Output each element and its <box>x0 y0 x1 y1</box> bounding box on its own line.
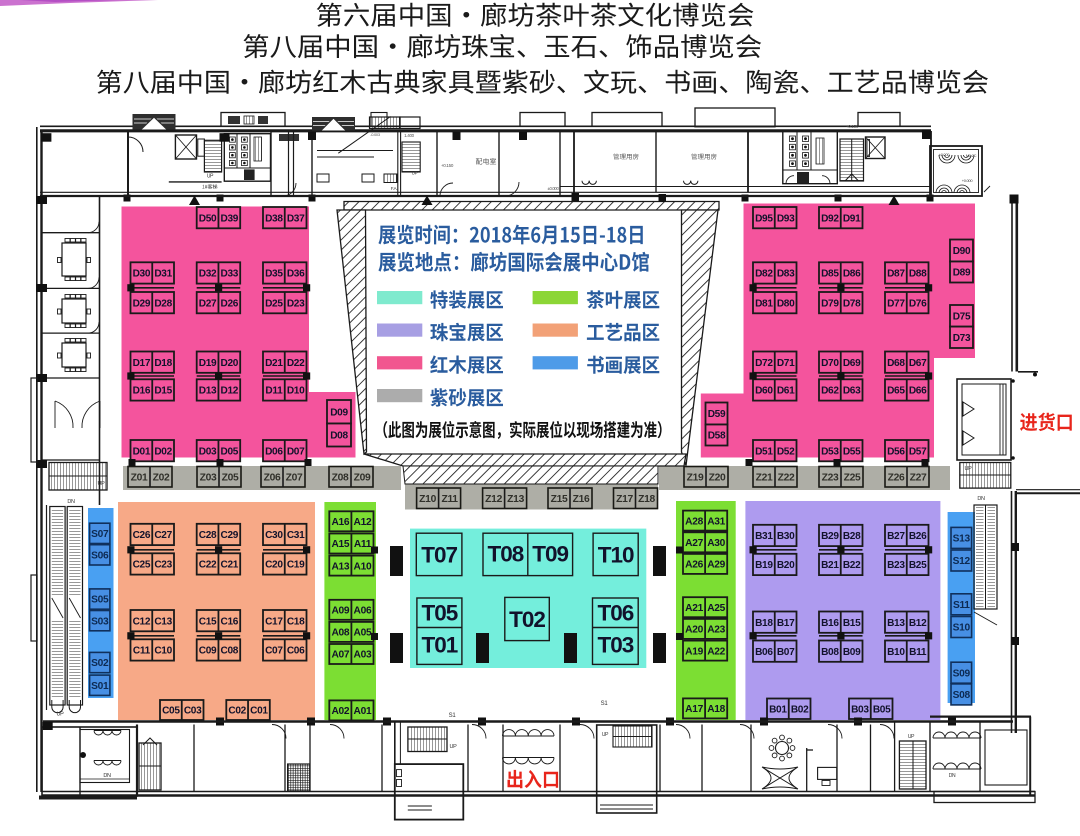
svg-text:S1: S1 <box>449 713 457 719</box>
svg-text:A22: A22 <box>707 646 725 657</box>
svg-text:D69: D69 <box>843 358 861 369</box>
svg-text:B01: B01 <box>769 704 787 715</box>
svg-text:T05: T05 <box>422 601 458 626</box>
svg-text:S06: S06 <box>91 551 109 562</box>
svg-text:D65: D65 <box>887 386 905 397</box>
svg-text:Z12: Z12 <box>485 494 502 505</box>
svg-text:Z18: Z18 <box>638 494 655 505</box>
svg-text:A25: A25 <box>707 603 725 614</box>
svg-text:D72: D72 <box>755 358 773 369</box>
svg-text:T02: T02 <box>509 607 545 632</box>
svg-text:C22: C22 <box>199 560 217 571</box>
svg-text:D57: D57 <box>909 446 927 457</box>
svg-text:D27: D27 <box>199 298 217 309</box>
svg-text:B22: B22 <box>843 560 861 571</box>
svg-text:DN: DN <box>67 499 75 505</box>
svg-text:B19: B19 <box>755 560 773 571</box>
svg-text:Z23: Z23 <box>822 472 839 483</box>
svg-text:+0.150: +0.150 <box>846 124 859 129</box>
svg-text:C06: C06 <box>287 646 305 657</box>
svg-text:B12: B12 <box>909 618 927 629</box>
svg-text:S03: S03 <box>91 616 109 627</box>
svg-text:S07: S07 <box>91 529 109 540</box>
svg-text:Z16: Z16 <box>573 494 590 505</box>
svg-text:Z03: Z03 <box>200 472 217 483</box>
svg-text:D07: D07 <box>287 446 305 457</box>
svg-text:A30: A30 <box>707 538 725 549</box>
svg-text:C13: C13 <box>154 616 172 627</box>
svg-text:T10: T10 <box>598 543 634 568</box>
svg-text:A17: A17 <box>685 704 703 715</box>
svg-text:D23: D23 <box>287 298 305 309</box>
svg-text:D78: D78 <box>843 298 861 309</box>
svg-text:UP: UP <box>97 481 105 487</box>
svg-text:Z13: Z13 <box>507 494 524 505</box>
svg-text:C30: C30 <box>265 530 283 541</box>
svg-text:D10: D10 <box>287 386 305 397</box>
svg-text:D21: D21 <box>265 358 283 369</box>
svg-text:D90: D90 <box>953 246 971 257</box>
svg-text:D92: D92 <box>821 213 839 224</box>
svg-text:D60: D60 <box>755 386 773 397</box>
svg-text:B23: B23 <box>887 560 905 571</box>
svg-text:D86: D86 <box>843 269 861 280</box>
svg-text:D58: D58 <box>708 431 726 442</box>
svg-text:C28: C28 <box>199 530 217 541</box>
svg-text:D53: D53 <box>821 446 839 457</box>
svg-text:C05: C05 <box>162 706 180 717</box>
svg-text:B10: B10 <box>887 647 905 658</box>
svg-text:A15: A15 <box>331 539 349 550</box>
svg-text:D01: D01 <box>133 446 151 457</box>
svg-text:A05: A05 <box>354 628 372 639</box>
svg-text:A03: A03 <box>354 650 372 661</box>
svg-text:C19: C19 <box>287 560 305 571</box>
svg-text:C27: C27 <box>154 530 172 541</box>
svg-text:B30: B30 <box>777 531 795 542</box>
svg-text:Z10: Z10 <box>419 494 436 505</box>
svg-text:D06: D06 <box>265 446 283 457</box>
svg-text:S12: S12 <box>953 556 971 567</box>
svg-text:B31: B31 <box>755 531 773 542</box>
svg-text:B29: B29 <box>821 531 839 542</box>
svg-text:D52: D52 <box>777 446 795 457</box>
svg-text:UP: UP <box>449 744 457 750</box>
svg-text:A28: A28 <box>685 516 703 527</box>
svg-text:Z21: Z21 <box>756 472 773 483</box>
svg-text:D79: D79 <box>821 298 839 309</box>
svg-text:D80: D80 <box>777 298 795 309</box>
svg-text:B13: B13 <box>887 618 905 629</box>
svg-text:C25: C25 <box>133 560 151 571</box>
svg-text:Z05: Z05 <box>222 472 239 483</box>
svg-text:D05: D05 <box>221 446 239 457</box>
svg-text:A27: A27 <box>685 538 703 549</box>
svg-text:D73: D73 <box>953 333 971 344</box>
svg-text:B16: B16 <box>821 618 839 629</box>
svg-text:Z27: Z27 <box>910 472 927 483</box>
svg-text:D13: D13 <box>199 386 217 397</box>
svg-text:C15: C15 <box>199 616 217 627</box>
svg-text:D67: D67 <box>909 358 927 369</box>
svg-text:UP: UP <box>207 174 214 180</box>
svg-text:C26: C26 <box>133 530 151 541</box>
svg-text:S13: S13 <box>953 534 971 545</box>
svg-text:A11: A11 <box>354 539 372 550</box>
svg-text:Z17: Z17 <box>616 494 633 505</box>
svg-text:D88: D88 <box>909 269 927 280</box>
svg-text:C29: C29 <box>221 530 239 541</box>
svg-text:C01: C01 <box>250 706 268 717</box>
svg-text:T03: T03 <box>598 633 634 658</box>
svg-text:C31: C31 <box>287 530 305 541</box>
svg-text:D20: D20 <box>221 358 239 369</box>
svg-text:Z09: Z09 <box>354 472 371 483</box>
svg-text:D12: D12 <box>221 386 239 397</box>
svg-text:D75: D75 <box>953 311 971 322</box>
svg-text:D68: D68 <box>887 358 905 369</box>
svg-text:D91: D91 <box>843 213 861 224</box>
svg-text:D32: D32 <box>199 269 217 280</box>
svg-text:T08: T08 <box>488 542 524 567</box>
svg-text:D37: D37 <box>287 213 305 224</box>
svg-text:A26: A26 <box>685 560 703 571</box>
svg-text:D89: D89 <box>953 268 971 279</box>
svg-text:D81: D81 <box>755 298 773 309</box>
svg-text:UP: UP <box>412 171 418 176</box>
svg-text:B11: B11 <box>909 647 927 658</box>
svg-text:D93: D93 <box>777 213 795 224</box>
svg-text:B03: B03 <box>851 704 869 715</box>
svg-text:D25: D25 <box>265 298 283 309</box>
svg-text:+0.000: +0.000 <box>962 178 974 183</box>
svg-text:D82: D82 <box>755 269 773 280</box>
svg-text:D85: D85 <box>821 269 839 280</box>
svg-text:M0-2C: M0-2C <box>966 153 977 158</box>
svg-text:B08: B08 <box>821 647 839 658</box>
svg-text:D02: D02 <box>154 446 172 457</box>
svg-text:Z08: Z08 <box>332 472 349 483</box>
svg-text:C03: C03 <box>184 706 202 717</box>
svg-text:D83: D83 <box>777 269 795 280</box>
svg-text:DN: DN <box>977 496 985 502</box>
svg-text:C18: C18 <box>287 616 305 627</box>
svg-text:C11: C11 <box>133 646 151 657</box>
svg-text:Z11: Z11 <box>441 494 458 505</box>
svg-text:D87: D87 <box>887 269 905 280</box>
svg-text:±0.000: ±0.000 <box>548 186 560 191</box>
svg-text:D35: D35 <box>265 269 283 280</box>
svg-text:B18: B18 <box>755 618 773 629</box>
svg-text:A06: A06 <box>354 605 372 616</box>
svg-text:A13: A13 <box>331 561 349 572</box>
svg-text:C08: C08 <box>221 646 239 657</box>
svg-text:C02: C02 <box>228 706 246 717</box>
svg-text:D16: D16 <box>133 386 151 397</box>
svg-text:D63: D63 <box>843 386 861 397</box>
svg-text:S1: S1 <box>601 701 609 707</box>
svg-text:S09: S09 <box>953 668 971 679</box>
svg-text:D38: D38 <box>265 213 283 224</box>
svg-text:B17: B17 <box>777 618 795 629</box>
svg-text:UP: UP <box>56 712 64 718</box>
svg-text:D59: D59 <box>708 409 726 420</box>
svg-text:Z02: Z02 <box>153 472 170 483</box>
svg-text:Z22: Z22 <box>778 472 795 483</box>
svg-text:Z07: Z07 <box>286 472 303 483</box>
svg-text:S02: S02 <box>91 658 109 669</box>
svg-text:B07: B07 <box>777 647 795 658</box>
svg-text:D36: D36 <box>287 269 305 280</box>
svg-text:A02: A02 <box>331 706 349 717</box>
svg-text:A01: A01 <box>354 706 372 717</box>
svg-text:A18: A18 <box>707 704 725 715</box>
svg-text:D76: D76 <box>909 298 927 309</box>
svg-text:A12: A12 <box>354 517 372 528</box>
svg-text:D77: D77 <box>887 298 905 309</box>
svg-text:D66: D66 <box>909 386 927 397</box>
svg-text:B28: B28 <box>843 531 861 542</box>
svg-text:Z20: Z20 <box>709 472 726 483</box>
svg-text:D55: D55 <box>843 446 861 457</box>
svg-text:D08: D08 <box>330 431 348 442</box>
svg-text:B02: B02 <box>791 704 809 715</box>
svg-text:T01: T01 <box>422 633 458 658</box>
svg-text:A19: A19 <box>685 646 703 657</box>
svg-text:D30: D30 <box>133 269 151 280</box>
svg-text:±0.000: ±0.000 <box>939 152 950 157</box>
svg-text:1.400: 1.400 <box>404 133 415 138</box>
svg-text:C10: C10 <box>154 646 172 657</box>
svg-text:D50: D50 <box>199 213 217 224</box>
svg-text:C17: C17 <box>265 616 283 627</box>
svg-text:B26: B26 <box>909 531 927 542</box>
svg-text:D22: D22 <box>287 358 305 369</box>
svg-text:D18: D18 <box>154 358 172 369</box>
svg-text:D11: D11 <box>265 386 283 397</box>
svg-text:UP: UP <box>908 734 915 740</box>
svg-text:F.A.: F.A. <box>391 186 398 191</box>
svg-text:S08: S08 <box>953 690 971 701</box>
svg-text:D26: D26 <box>221 298 239 309</box>
svg-text:T09: T09 <box>532 542 568 567</box>
svg-text:B20: B20 <box>777 560 795 571</box>
svg-text:C20: C20 <box>265 560 283 571</box>
svg-text:D39: D39 <box>221 213 239 224</box>
svg-text:Z19: Z19 <box>687 472 704 483</box>
svg-text:A29: A29 <box>707 560 725 571</box>
svg-text:B15: B15 <box>843 618 861 629</box>
svg-text:D03: D03 <box>199 446 217 457</box>
svg-text:B06: B06 <box>755 647 773 658</box>
svg-text:B09: B09 <box>843 647 861 658</box>
svg-text:C16: C16 <box>221 616 239 627</box>
svg-text:D29: D29 <box>133 298 151 309</box>
svg-text:A31: A31 <box>707 516 725 527</box>
svg-text:A23: A23 <box>707 625 725 636</box>
svg-text:S01: S01 <box>91 681 109 692</box>
svg-text:D19: D19 <box>199 358 217 369</box>
svg-text:DN: DN <box>949 773 956 779</box>
svg-text:S05: S05 <box>91 595 109 606</box>
svg-text:D61: D61 <box>777 386 795 397</box>
svg-text:C09: C09 <box>199 646 217 657</box>
svg-text:Z26: Z26 <box>888 472 905 483</box>
svg-text:B27: B27 <box>887 531 905 542</box>
svg-text:S10: S10 <box>953 623 971 634</box>
svg-text:C23: C23 <box>154 560 172 571</box>
svg-text:A07: A07 <box>331 650 349 661</box>
svg-text:S11: S11 <box>953 600 970 611</box>
svg-text:B05: B05 <box>873 704 891 715</box>
svg-text:A08: A08 <box>331 628 349 639</box>
svg-text:D31: D31 <box>154 269 172 280</box>
svg-text:Z06: Z06 <box>264 472 281 483</box>
svg-text:T07: T07 <box>421 543 457 568</box>
svg-text:D56: D56 <box>887 446 905 457</box>
svg-text:A10: A10 <box>354 561 372 572</box>
svg-text:UP: UP <box>964 466 972 472</box>
svg-text:B21: B21 <box>821 560 839 571</box>
svg-text:D71: D71 <box>777 358 795 369</box>
svg-text:A16: A16 <box>331 517 349 528</box>
svg-text:Z15: Z15 <box>551 494 568 505</box>
svg-text:A09: A09 <box>331 605 349 616</box>
svg-text:T06: T06 <box>598 601 634 626</box>
svg-text:D28: D28 <box>154 298 172 309</box>
svg-text:D51: D51 <box>755 446 773 457</box>
svg-text:+0.150: +0.150 <box>441 163 454 168</box>
svg-text:D62: D62 <box>821 386 839 397</box>
svg-text:DN: DN <box>103 773 111 779</box>
svg-text:D95: D95 <box>755 213 773 224</box>
svg-text:A20: A20 <box>685 625 703 636</box>
svg-text:D15: D15 <box>154 386 172 397</box>
svg-text:D70: D70 <box>821 358 839 369</box>
svg-text:Z25: Z25 <box>844 472 861 483</box>
svg-text:D09: D09 <box>330 407 348 418</box>
svg-text:B25: B25 <box>909 560 927 571</box>
svg-text:-0.003: -0.003 <box>370 132 381 137</box>
svg-text:C21: C21 <box>221 560 239 571</box>
svg-text:A21: A21 <box>685 603 703 614</box>
svg-text:C07: C07 <box>265 646 283 657</box>
svg-text:D17: D17 <box>133 358 151 369</box>
svg-text:UP: UP <box>602 732 609 738</box>
svg-text:Z01: Z01 <box>131 472 148 483</box>
svg-text:C12: C12 <box>133 616 151 627</box>
svg-text:D33: D33 <box>221 269 239 280</box>
